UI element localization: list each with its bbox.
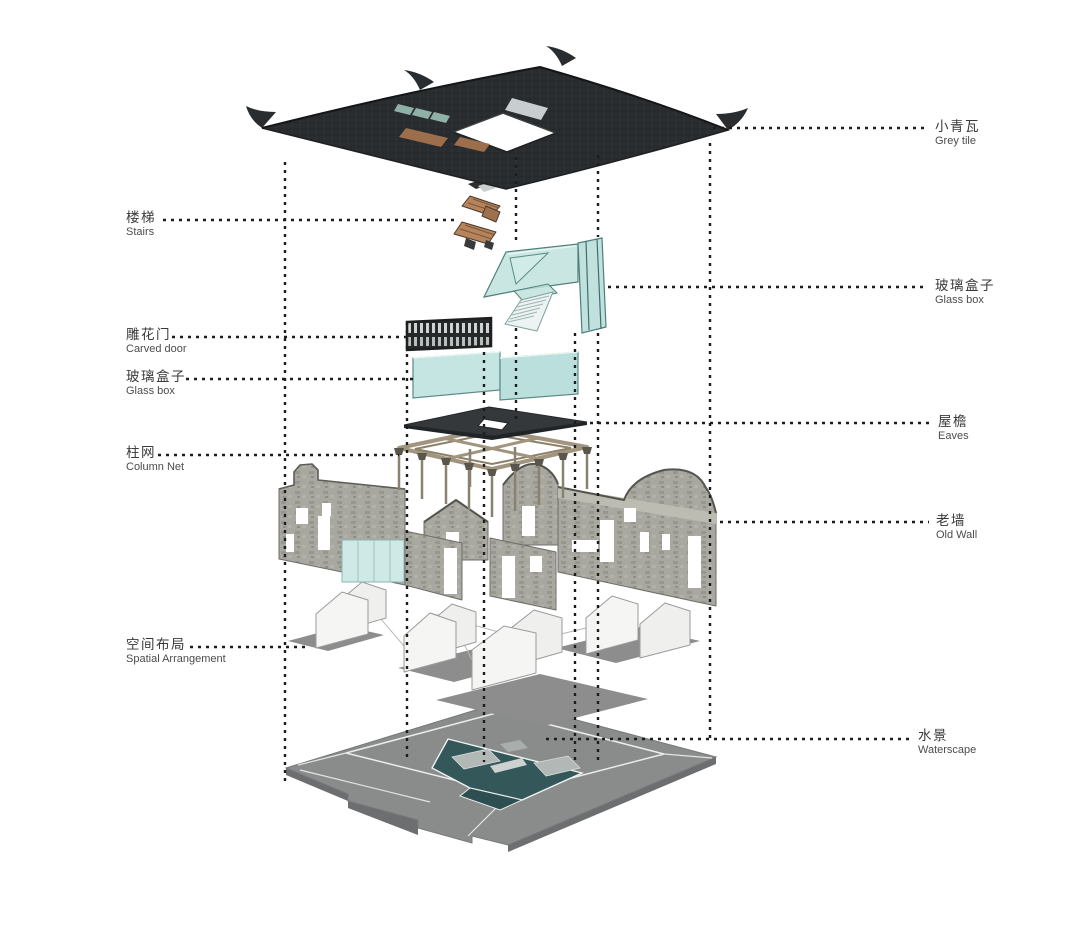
label-old-wall: 老墙 Old Wall xyxy=(936,513,977,542)
stair-flight xyxy=(505,292,553,331)
roof-ridge-horn xyxy=(404,70,434,90)
label-stairs-cn: 楼梯 xyxy=(126,210,156,226)
label-spatial-arrangement-en: Spatial Arrangement xyxy=(126,653,226,666)
label-spatial-arrangement-cn: 空间布局 xyxy=(126,637,226,653)
carved-door-screen xyxy=(407,318,491,350)
label-spatial-arrangement: 空间布局 Spatial Arrangement xyxy=(126,637,226,666)
label-waterscape-cn: 水景 xyxy=(918,728,976,744)
eaves xyxy=(404,407,587,440)
label-column-net-en: Column Net xyxy=(126,461,184,474)
window-opening xyxy=(662,534,670,550)
label-waterscape: 水景 Waterscape xyxy=(918,728,976,757)
stairs xyxy=(454,180,500,250)
glass-panel xyxy=(500,352,578,400)
label-stairs-en: Stairs xyxy=(126,226,156,239)
exploded-axonometric-diagram: 楼梯 Stairs 雕花门 Carved door 玻璃盒子 Glass box… xyxy=(0,0,1080,934)
label-eaves-en: Eaves xyxy=(938,430,969,443)
label-glass-box-left: 玻璃盒子 Glass box xyxy=(126,369,186,398)
window-opening xyxy=(286,534,294,552)
label-grey-tile-en: Grey tile xyxy=(935,135,980,148)
label-column-net-cn: 柱网 xyxy=(126,445,184,461)
door-opening xyxy=(522,506,535,536)
label-eaves-cn: 屋檐 xyxy=(938,414,969,430)
glass-column xyxy=(578,238,606,333)
label-grey-tile: 小青瓦 Grey tile xyxy=(935,119,980,148)
label-old-wall-cn: 老墙 xyxy=(936,513,977,529)
label-waterscape-en: Waterscape xyxy=(918,744,976,757)
spatial-arrangement xyxy=(288,582,700,726)
door-opening xyxy=(318,516,330,550)
label-carved-door: 雕花门 Carved door xyxy=(126,327,187,356)
label-glass-box-right-cn: 玻璃盒子 xyxy=(935,278,995,294)
window-opening xyxy=(296,508,308,524)
glass-infill-panel xyxy=(342,540,404,582)
door-opening xyxy=(502,556,515,598)
waterscape xyxy=(286,701,716,852)
label-eaves: 屋檐 Eaves xyxy=(938,414,969,443)
label-stairs: 楼梯 Stairs xyxy=(126,210,156,239)
roof-grey-tile xyxy=(246,46,748,189)
carved-door xyxy=(407,318,491,350)
old-wall xyxy=(279,464,716,610)
door-opening xyxy=(444,548,457,594)
label-old-wall-en: Old Wall xyxy=(936,529,977,542)
window-opening xyxy=(624,508,636,522)
glass-panel xyxy=(413,352,500,398)
glass-box-lower xyxy=(413,352,578,400)
glass-box-upper xyxy=(484,238,606,333)
roof-body xyxy=(262,67,728,189)
window-opening xyxy=(530,556,542,572)
label-glass-box-right: 玻璃盒子 Glass box xyxy=(935,278,995,307)
window-opening xyxy=(322,503,331,516)
gable-profile xyxy=(640,603,690,658)
door-opening xyxy=(600,520,614,562)
label-carved-door-cn: 雕花门 xyxy=(126,327,187,343)
label-grey-tile-cn: 小青瓦 xyxy=(935,119,980,135)
roof-ridge-horn xyxy=(546,46,576,66)
label-column-net: 柱网 Column Net xyxy=(126,445,184,474)
label-glass-box-left-cn: 玻璃盒子 xyxy=(126,369,186,385)
label-glass-box-right-en: Glass box xyxy=(935,294,995,307)
label-glass-box-left-en: Glass box xyxy=(126,385,186,398)
label-carved-door-en: Carved door xyxy=(126,343,187,356)
window-opening xyxy=(640,532,649,552)
front-wall xyxy=(490,538,556,610)
door-opening xyxy=(688,536,701,588)
